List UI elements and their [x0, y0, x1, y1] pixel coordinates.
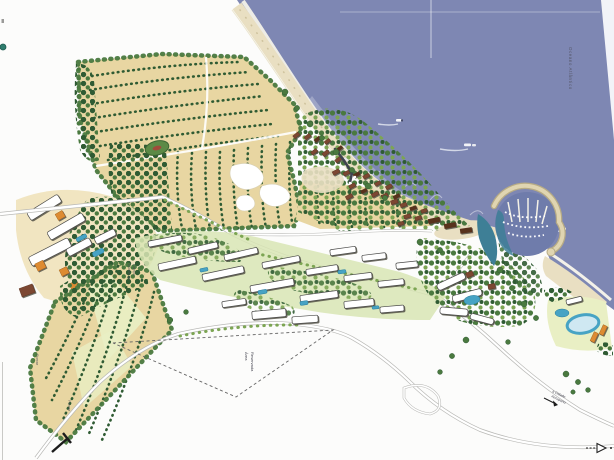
reserved-area-label-line2: Reservada: [250, 352, 255, 372]
field-label-lower: Pomar: [67, 400, 71, 412]
nucleo-label-line1: Núcleo de: [127, 264, 131, 280]
breakwater-head: [547, 248, 555, 256]
scan-dot: [0, 44, 6, 50]
ocean-label: Oceano Atlântico: [568, 47, 573, 90]
nucleo-label-line2: Campo: [132, 264, 136, 276]
unbuilt-plot: [236, 195, 255, 211]
waterpark-pool: [555, 309, 569, 317]
scan-speck: [2, 19, 5, 23]
field-label-upper: Pomar: [35, 354, 39, 366]
masterplan-page: Oceano Atlântico: [0, 0, 614, 460]
masterplan-map: Oceano Atlântico: [0, 0, 614, 460]
reserved-area-label-line1: Área: [244, 352, 249, 361]
